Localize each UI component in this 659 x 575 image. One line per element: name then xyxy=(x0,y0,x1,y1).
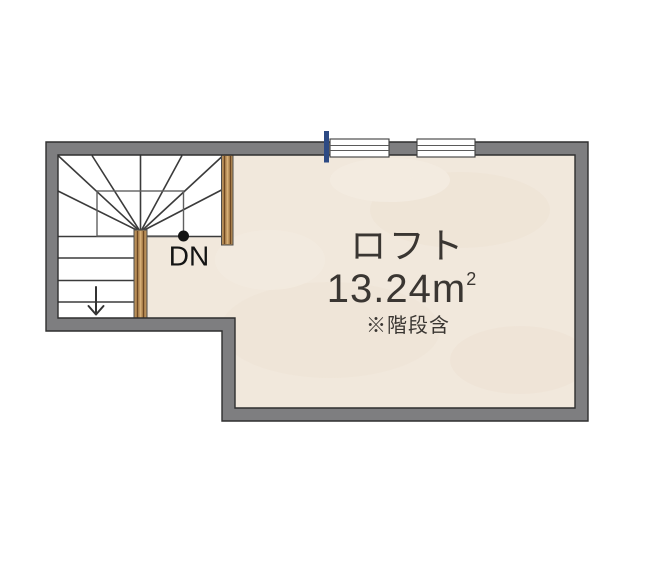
stair-newel-post xyxy=(134,230,147,319)
window-marker-tick xyxy=(324,131,329,163)
room-area-label: 13.24m2 xyxy=(327,267,477,311)
window-2 xyxy=(417,139,475,157)
floor-plan-page: DN ロフト 13.24m2 ※階段含 xyxy=(0,0,659,575)
room-note-label: ※階段含 xyxy=(366,314,450,337)
dn-label: DN xyxy=(169,241,209,272)
window-1 xyxy=(330,139,389,157)
room-area-superscript: 2 xyxy=(466,269,477,289)
room-name-label: ロフト xyxy=(350,225,466,266)
floor-plan-svg: DN ロフト 13.24m2 ※階段含 xyxy=(0,0,659,575)
stair-rail-wall xyxy=(222,155,234,245)
room-area-value: 13.24m xyxy=(327,267,466,311)
